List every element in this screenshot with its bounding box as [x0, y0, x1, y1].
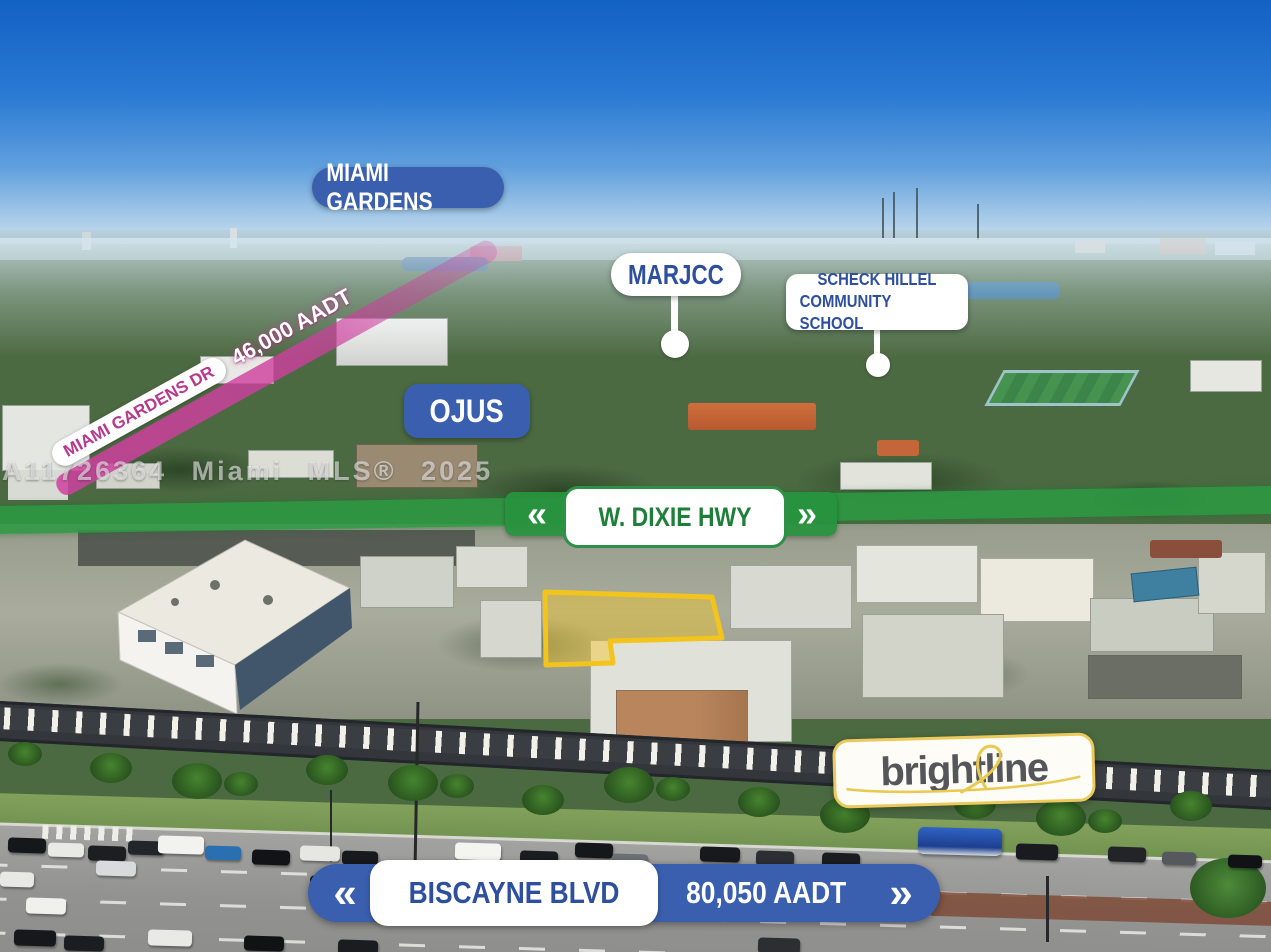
chevron-left-icon: « [513, 494, 561, 534]
palm-tree [388, 765, 438, 801]
palm-tree [306, 755, 348, 785]
label-biscayne-blvd: « BISCAYNE BLVD 80,050 AADT » [308, 864, 940, 922]
distant-buildings [1160, 238, 1206, 254]
warehouse-roof [1198, 552, 1266, 614]
palm-tree [440, 774, 474, 798]
w-dixie-hwy-name: W. DIXIE HWY [563, 486, 787, 548]
distant-buildings [1075, 240, 1105, 253]
car [700, 846, 740, 862]
label-ojus: OJUS [404, 384, 530, 438]
orange-roof-building [688, 403, 816, 430]
car [455, 842, 501, 860]
playground [1150, 540, 1222, 558]
palm-tree [172, 763, 222, 799]
warehouse-roof [456, 546, 528, 588]
chevron-right-icon: » [783, 494, 831, 534]
dark-lot [1088, 655, 1242, 699]
palm-tree [604, 767, 654, 803]
palm-tree [1088, 809, 1122, 833]
car [64, 935, 104, 951]
car [14, 929, 56, 946]
brightline-wordmark: brightline [880, 746, 1048, 796]
palm-tree [522, 785, 564, 815]
biscayne-blvd-name: BISCAYNE BLVD [370, 860, 658, 926]
car [1162, 851, 1196, 865]
car [88, 845, 126, 861]
chevron-right-icon: » [876, 872, 926, 914]
warehouse-roof [730, 565, 852, 629]
car [1108, 846, 1146, 862]
distant-tower [230, 228, 237, 248]
antenna-mast [893, 192, 895, 238]
warehouse-roof [480, 600, 542, 658]
palm-tree [738, 787, 780, 817]
marjcc-pointer-dot [661, 330, 689, 358]
car [244, 935, 284, 951]
antenna-mast [977, 204, 979, 240]
car [252, 849, 290, 865]
car [158, 835, 205, 854]
biscayne-blvd-aadt: 80,050 AADT [660, 864, 872, 922]
palm-tree [1036, 800, 1086, 836]
football-field [984, 370, 1139, 406]
warehouse-roof [862, 614, 1004, 698]
label-w-dixie-hwy: « W. DIXIE HWY » [505, 492, 837, 536]
commercial-roof [1190, 360, 1262, 392]
car [575, 842, 613, 858]
car [8, 837, 46, 853]
palm-tree [1170, 791, 1212, 821]
warehouse-roof [856, 545, 978, 603]
car [148, 929, 192, 946]
aerial-photo: A11726364 Miami MLS® 2025 MIAMI GARDENS … [0, 0, 1271, 952]
car [758, 937, 800, 952]
car [205, 845, 241, 860]
distant-buildings [1215, 242, 1255, 255]
car [300, 845, 340, 861]
bus [918, 827, 1003, 856]
car [26, 897, 66, 914]
label-scheck-hillel: SCHECK HILLEL COMMUNITY SCHOOL [786, 274, 968, 330]
chevron-left-icon: « [320, 872, 370, 914]
commercial-roof [840, 462, 932, 490]
label-miami-gardens: MIAMI GARDENS [312, 167, 504, 208]
car [1016, 843, 1058, 860]
label-marjcc: MARJCC [611, 253, 741, 296]
warehouse-roof [1090, 598, 1214, 652]
scheck-pointer-dot [866, 353, 890, 377]
palm-tree [90, 753, 132, 783]
warehouse-roof [980, 558, 1094, 622]
sky [0, 0, 1271, 252]
antenna-mast [916, 188, 918, 238]
car [338, 939, 378, 952]
distant-tower [82, 232, 91, 250]
light-pole [1046, 876, 1049, 942]
brightline-sign: brightline [832, 732, 1096, 808]
palm-tree [224, 772, 258, 796]
car [96, 860, 136, 876]
warehouse-roof [360, 556, 454, 608]
orange-roof-building [877, 440, 919, 456]
palm-tree [656, 777, 690, 801]
antenna-mast [882, 198, 884, 238]
car [1228, 854, 1262, 868]
car [48, 842, 84, 857]
palm-tree [8, 742, 42, 766]
car [0, 871, 34, 887]
